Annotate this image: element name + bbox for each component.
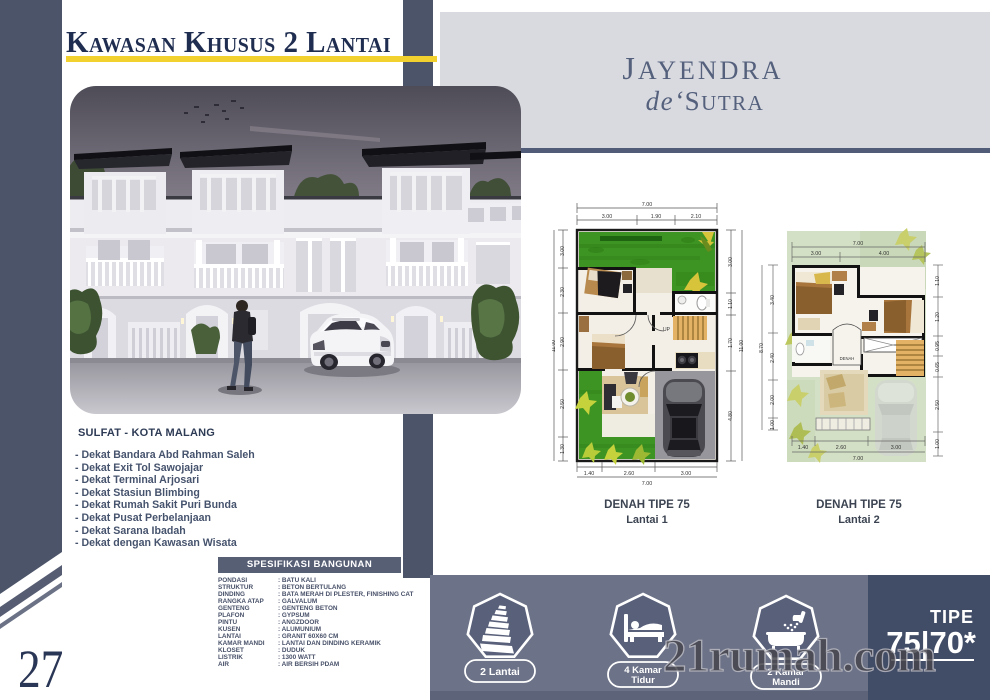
svg-text:1.40: 1.40 (798, 445, 809, 451)
svg-text:1.30: 1.30 (560, 444, 566, 454)
svg-text:1.90: 1.90 (651, 214, 662, 220)
svg-text:1.10: 1.10 (935, 276, 941, 286)
svg-text:UP: UP (663, 327, 671, 333)
svg-text:7.00: 7.00 (853, 241, 864, 247)
svg-text:1.40: 1.40 (584, 471, 595, 477)
svg-text:Tidur: Tidur (631, 675, 655, 686)
svg-text:2.10: 2.10 (691, 214, 702, 220)
svg-text:2.90: 2.90 (560, 337, 566, 347)
svg-text:1.20: 1.20 (935, 312, 941, 322)
svg-text:2.50: 2.50 (560, 399, 566, 409)
svg-text:DENAH: DENAH (840, 356, 855, 361)
svg-text:3.00: 3.00 (811, 251, 822, 257)
svg-text:11.00: 11.00 (739, 340, 745, 352)
svg-text:2.50: 2.50 (935, 400, 941, 410)
svg-text:3.00: 3.00 (560, 246, 566, 256)
svg-text:1.10: 1.10 (728, 299, 734, 309)
svg-text:3.00: 3.00 (728, 257, 734, 267)
svg-text:4.00: 4.00 (879, 251, 890, 257)
svg-text:2.30: 2.30 (560, 287, 566, 297)
svg-text:2.40: 2.40 (770, 353, 776, 363)
svg-text:7.00: 7.00 (642, 202, 653, 208)
svg-text:7.00: 7.00 (642, 481, 653, 486)
svg-text:0.95: 0.95 (935, 341, 941, 351)
svg-text:3.00: 3.00 (891, 445, 902, 451)
svg-text:4.80: 4.80 (728, 411, 734, 421)
svg-text:0.65: 0.65 (935, 362, 941, 372)
svg-text:3.00: 3.00 (602, 214, 613, 220)
svg-text:2 Lantai: 2 Lantai (480, 666, 520, 678)
svg-text:3.40: 3.40 (770, 295, 776, 305)
svg-text:2.60: 2.60 (836, 445, 847, 451)
svg-text:8.70: 8.70 (759, 343, 765, 353)
svg-text:11.00: 11.00 (552, 340, 557, 352)
svg-text:3.00: 3.00 (681, 471, 692, 477)
svg-text:1.00: 1.00 (770, 420, 776, 430)
svg-text:7.00: 7.00 (853, 456, 864, 462)
svg-text:2.00: 2.00 (770, 395, 776, 405)
svg-text:1.00: 1.00 (935, 439, 941, 449)
svg-text:1.70: 1.70 (728, 338, 734, 348)
svg-text:2.60: 2.60 (624, 471, 635, 477)
